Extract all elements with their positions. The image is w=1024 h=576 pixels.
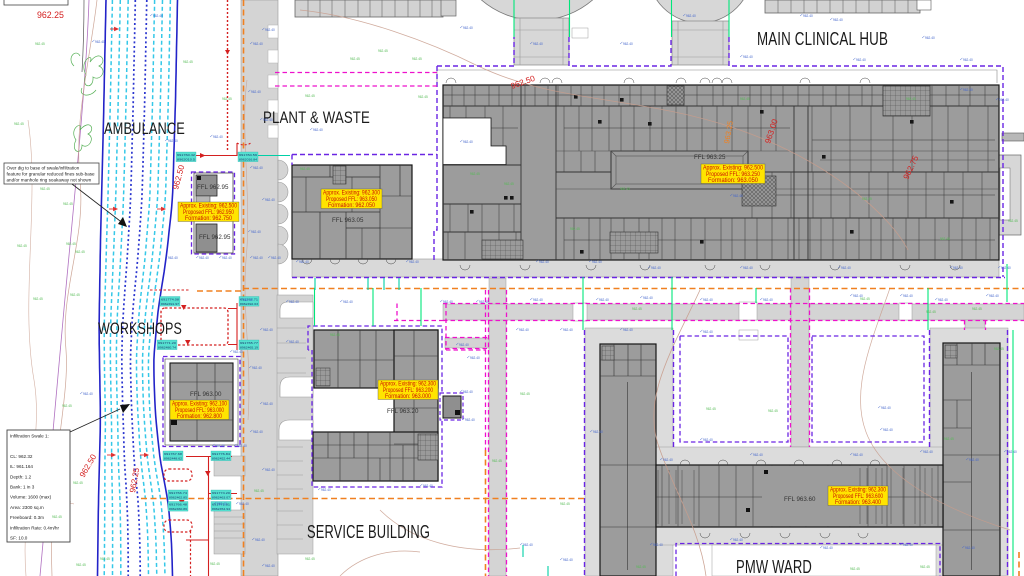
svg-text:962.40: 962.40 (263, 328, 273, 332)
svg-text:962.45: 962.45 (492, 459, 502, 463)
svg-text:8962010.5: 8962010.5 (177, 158, 195, 162)
svg-text:962.45: 962.45 (920, 565, 930, 569)
svg-text:Infiltration Rate: 0.4m/hr: Infiltration Rate: 0.4m/hr (10, 525, 59, 530)
svg-text:962.40: 962.40 (753, 453, 763, 457)
svg-text:962.40: 962.40 (199, 256, 209, 260)
svg-text:962.40: 962.40 (592, 260, 602, 264)
svg-text:962.40: 962.40 (251, 90, 261, 94)
svg-text:Formation: 962.800: Formation: 962.800 (177, 413, 223, 420)
svg-text:962.40: 962.40 (299, 260, 309, 264)
svg-text:962.45: 962.45 (330, 333, 340, 337)
svg-text:691767.68: 691767.68 (164, 452, 182, 456)
svg-text:691766.48: 691766.48 (169, 503, 187, 507)
svg-text:962.40: 962.40 (271, 256, 281, 260)
svg-text:962.45: 962.45 (305, 557, 315, 561)
svg-text:962.45: 962.45 (412, 57, 422, 61)
svg-text:962.40: 962.40 (321, 488, 331, 492)
svg-text:WORKSHOPS: WORKSHOPS (98, 319, 182, 338)
svg-text:962.40: 962.40 (253, 42, 263, 46)
svg-text:962.40: 962.40 (523, 543, 533, 547)
svg-text:962.40: 962.40 (519, 328, 529, 332)
svg-text:962.40: 962.40 (243, 298, 253, 302)
svg-text:691766.74: 691766.74 (169, 491, 187, 495)
svg-text:962.40: 962.40 (153, 14, 163, 18)
svg-text:962.40: 962.40 (265, 468, 275, 472)
svg-text:Depth: 1.2: Depth: 1.2 (10, 474, 32, 479)
svg-text:962.45: 962.45 (63, 202, 73, 206)
svg-text:962.45: 962.45 (254, 489, 264, 493)
svg-text:962.45: 962.45 (52, 515, 62, 519)
svg-text:962.40: 962.40 (733, 538, 743, 542)
svg-text:962.40: 962.40 (83, 392, 93, 396)
svg-text:962.40: 962.40 (703, 330, 713, 334)
svg-text:962.40: 962.40 (969, 458, 979, 462)
svg-text:Formation: 962.050: Formation: 962.050 (328, 202, 376, 209)
svg-text:962.40: 962.40 (313, 128, 323, 132)
svg-text:8962454.94: 8962454.94 (212, 507, 230, 511)
svg-text:962.40: 962.40 (533, 298, 543, 302)
svg-text:962.40: 962.40 (443, 300, 453, 304)
svg-text:Over dig to base of swale/infi: Over dig to base of swale/infiltration (7, 166, 80, 171)
svg-text:SF: 10.0: SF: 10.0 (10, 536, 28, 541)
svg-text:962.40: 962.40 (463, 140, 473, 144)
svg-text:CL: 962.32: CL: 962.32 (10, 454, 33, 459)
svg-text:962.40: 962.40 (423, 484, 433, 488)
svg-text:962.40: 962.40 (263, 118, 273, 122)
svg-text:Formation: 963.050: Formation: 963.050 (708, 177, 759, 184)
svg-text:962.45: 962.45 (940, 237, 950, 241)
svg-text:962.40: 962.40 (459, 343, 469, 347)
svg-text:962.40: 962.40 (643, 296, 653, 300)
svg-text:962.40: 962.40 (853, 453, 863, 457)
svg-text:962.40: 962.40 (463, 390, 473, 394)
svg-text:962.40: 962.40 (265, 28, 275, 32)
svg-text:962.40: 962.40 (168, 256, 178, 260)
svg-text:962.45: 962.45 (17, 244, 27, 248)
svg-text:962.40: 962.40 (168, 139, 178, 143)
svg-text:962.45: 962.45 (40, 187, 50, 191)
svg-text:962.40: 962.40 (255, 538, 265, 542)
svg-text:962.45: 962.45 (378, 49, 388, 53)
svg-text:691765.77: 691765.77 (240, 341, 258, 345)
svg-text:8962492.03: 8962492.03 (240, 302, 258, 306)
svg-text:691774.08: 691774.08 (161, 298, 179, 302)
svg-text:962.45: 962.45 (70, 293, 80, 297)
svg-text:962.40: 962.40 (265, 198, 275, 202)
svg-text:962.40: 962.40 (953, 266, 963, 270)
svg-text:962.40: 962.40 (881, 406, 891, 410)
svg-text:PLANT & WASTE: PLANT & WASTE (263, 108, 370, 127)
svg-text:962.40: 962.40 (703, 298, 713, 302)
svg-text:962.40: 962.40 (965, 546, 975, 550)
svg-text:962.45: 962.45 (906, 97, 916, 101)
svg-text:962.45: 962.45 (470, 172, 480, 176)
svg-text:962.45: 962.45 (33, 297, 43, 301)
svg-text:962.40: 962.40 (923, 450, 933, 454)
svg-text:962.45: 962.45 (418, 95, 428, 99)
svg-text:FFL 962.95: FFL 962.95 (197, 184, 229, 191)
svg-text:Freeboard: 0.3m: Freeboard: 0.3m (10, 515, 44, 520)
svg-text:962.40: 962.40 (215, 444, 225, 448)
svg-text:962.40: 962.40 (599, 298, 609, 302)
svg-text:962.45: 962.45 (14, 122, 24, 126)
svg-text:962.40: 962.40 (963, 88, 973, 92)
svg-text:962.40: 962.40 (803, 14, 813, 18)
svg-text:AMBULANCE: AMBULANCE (104, 119, 185, 138)
svg-text:962.40: 962.40 (237, 444, 247, 448)
svg-text:962.40: 962.40 (470, 356, 480, 360)
svg-text:962.45: 962.45 (300, 167, 310, 171)
svg-text:962.40: 962.40 (533, 42, 543, 46)
svg-text:962.45: 962.45 (862, 197, 872, 201)
svg-text:Formation: 963.400: Formation: 963.400 (835, 499, 882, 506)
svg-text:Area: 2300 sq.m: Area: 2300 sq.m (10, 505, 44, 510)
svg-text:962.40: 962.40 (833, 18, 843, 22)
svg-text:962.45: 962.45 (994, 347, 1004, 351)
svg-text:962.40: 962.40 (563, 558, 573, 562)
svg-text:FFL 963.60: FFL 963.60 (784, 496, 816, 503)
svg-text:8962463.07: 8962463.07 (212, 496, 230, 500)
svg-text:8962491.97: 8962491.97 (161, 302, 179, 306)
svg-text:962.40: 962.40 (1001, 266, 1011, 270)
svg-text:8962465.19: 8962465.19 (240, 346, 258, 350)
svg-text:962.40: 962.40 (653, 543, 663, 547)
svg-text:962.40: 962.40 (289, 300, 299, 304)
svg-text:Volume: 1600 (max): Volume: 1600 (max) (10, 495, 52, 500)
svg-text:IL: 961.164: IL: 961.164 (10, 464, 33, 469)
svg-text:962.40: 962.40 (252, 366, 262, 370)
svg-text:962.40: 962.40 (686, 14, 696, 18)
svg-text:8962480.74: 8962480.74 (158, 346, 176, 350)
svg-text:962.40: 962.40 (1007, 450, 1017, 454)
svg-text:962.40: 962.40 (409, 260, 419, 264)
svg-text:962.45: 962.45 (632, 307, 642, 311)
svg-text:962.40: 962.40 (263, 402, 273, 406)
svg-text:962.40: 962.40 (343, 300, 353, 304)
svg-text:962.40: 962.40 (463, 26, 473, 30)
svg-text:962.45: 962.45 (66, 242, 76, 246)
svg-text:SERVICE BUILDING: SERVICE BUILDING (307, 522, 430, 542)
svg-text:962.40: 962.40 (903, 294, 913, 298)
svg-text:962.40: 962.40 (823, 546, 833, 550)
svg-text:962.45: 962.45 (62, 404, 72, 408)
svg-text:962.45: 962.45 (570, 227, 580, 231)
svg-text:962.40: 962.40 (251, 230, 261, 234)
svg-text:962.40: 962.40 (963, 58, 973, 62)
svg-text:691776.84: 691776.84 (212, 452, 230, 456)
svg-text:962.45: 962.45 (944, 437, 954, 441)
svg-text:962.40: 962.40 (763, 298, 773, 302)
svg-text:Bank: 1 in 3: Bank: 1 in 3 (10, 485, 35, 490)
svg-text:8962452.44: 8962452.44 (212, 457, 230, 461)
svg-text:962.40: 962.40 (883, 428, 893, 432)
svg-text:Formation: 962.750: Formation: 962.750 (185, 215, 233, 222)
svg-text:962.40: 962.40 (213, 135, 223, 139)
svg-text:962.40: 962.40 (222, 256, 232, 260)
svg-text:962.40: 962.40 (743, 55, 753, 59)
svg-text:962.45: 962.45 (620, 187, 630, 191)
svg-text:962.40: 962.40 (465, 418, 475, 422)
svg-text:PMW WARD: PMW WARD (736, 557, 812, 576)
svg-text:962.40: 962.40 (925, 36, 935, 40)
svg-text:FFL 963.05: FFL 963.05 (332, 217, 364, 224)
svg-text:feature for granular reduced f: feature for granular reduced fines sub-b… (7, 172, 96, 177)
svg-text:962.40: 962.40 (233, 350, 243, 354)
svg-text:962.40: 962.40 (289, 340, 299, 344)
svg-text:962.40: 962.40 (743, 266, 753, 270)
svg-text:962.45: 962.45 (210, 562, 220, 566)
svg-text:962.40: 962.40 (217, 502, 227, 506)
svg-text:962.40: 962.40 (651, 266, 661, 270)
svg-text:Infiltration Swale 1:: Infiltration Swale 1: (10, 434, 49, 439)
svg-text:962.40: 962.40 (265, 564, 275, 568)
svg-text:691784.59: 691784.59 (239, 153, 257, 157)
svg-text:962.45: 962.45 (222, 97, 232, 101)
svg-text:962.45: 962.45 (305, 94, 315, 98)
svg-text:691774.20: 691774.20 (212, 491, 230, 495)
svg-text:962.40: 962.40 (856, 58, 866, 62)
svg-text:962.45: 962.45 (926, 310, 936, 314)
svg-text:962.40: 962.40 (239, 502, 249, 506)
svg-text:962.45: 962.45 (100, 557, 110, 561)
svg-text:FFL 963.25: FFL 963.25 (694, 154, 726, 161)
svg-text:962.40: 962.40 (663, 458, 673, 462)
svg-text:962.45: 962.45 (1008, 219, 1018, 223)
svg-text:8962016.84: 8962016.84 (239, 158, 257, 162)
svg-text:962.40: 962.40 (623, 328, 633, 332)
svg-text:962.45: 962.45 (520, 392, 530, 396)
svg-text:962.40: 962.40 (95, 40, 105, 44)
svg-text:962.40: 962.40 (563, 328, 573, 332)
svg-text:962.45: 962.45 (560, 502, 570, 506)
svg-text:962.45: 962.45 (35, 42, 45, 46)
svg-text:962.45: 962.45 (183, 60, 193, 64)
svg-text:FFL 962.95: FFL 962.95 (199, 234, 231, 241)
svg-text:8962460.86: 8962460.86 (169, 507, 187, 511)
svg-text:962.40: 962.40 (841, 266, 851, 270)
svg-text:962.45: 962.45 (73, 481, 83, 485)
svg-text:962.45: 962.45 (76, 563, 86, 567)
svg-text:962.40: 962.40 (479, 300, 489, 304)
svg-text:962.45: 962.45 (850, 567, 860, 571)
svg-text:962.40: 962.40 (938, 298, 948, 302)
svg-text:962.40: 962.40 (253, 430, 263, 434)
svg-text:962.45: 962.45 (706, 407, 716, 411)
svg-text:962.40: 962.40 (253, 256, 263, 260)
svg-text:962.40: 962.40 (989, 294, 999, 298)
svg-text:962.45: 962.45 (504, 182, 514, 186)
svg-text:962.40: 962.40 (703, 438, 713, 442)
svg-text:MAIN CLINICAL HUB: MAIN CLINICAL HUB (757, 28, 888, 49)
svg-text:962.40: 962.40 (253, 166, 263, 170)
svg-text:691760.42: 691760.42 (177, 153, 195, 157)
svg-text:962.45: 962.45 (860, 297, 870, 301)
svg-text:962.40: 962.40 (733, 194, 743, 198)
svg-text:962.45: 962.45 (636, 565, 646, 569)
svg-text:962.45: 962.45 (972, 307, 982, 311)
svg-text:962.40: 962.40 (903, 543, 913, 547)
svg-text:962.45: 962.45 (350, 57, 360, 61)
svg-text:Formation: 963.000: Formation: 963.000 (385, 393, 432, 400)
svg-text:and/or manhole ring soakaway n: and/or manhole ring soakaway not shown (7, 178, 92, 183)
svg-text:962.40: 962.40 (999, 98, 1009, 102)
svg-text:962.45: 962.45 (768, 409, 778, 413)
svg-text:962.40: 962.40 (623, 42, 633, 46)
svg-text:FFL 963.00: FFL 963.00 (190, 391, 222, 398)
svg-text:962.40: 962.40 (593, 430, 603, 434)
svg-text:8962448.62: 8962448.62 (164, 457, 182, 461)
svg-text:8962462.85: 8962462.85 (169, 496, 187, 500)
svg-text:962.25: 962.25 (37, 10, 64, 20)
svg-text:691771.20: 691771.20 (158, 341, 176, 345)
svg-text:FFL 963.20: FFL 963.20 (387, 408, 419, 415)
svg-text:962.40: 962.40 (539, 260, 549, 264)
svg-text:962.45: 962.45 (740, 97, 750, 101)
svg-text:962.45: 962.45 (75, 250, 85, 254)
